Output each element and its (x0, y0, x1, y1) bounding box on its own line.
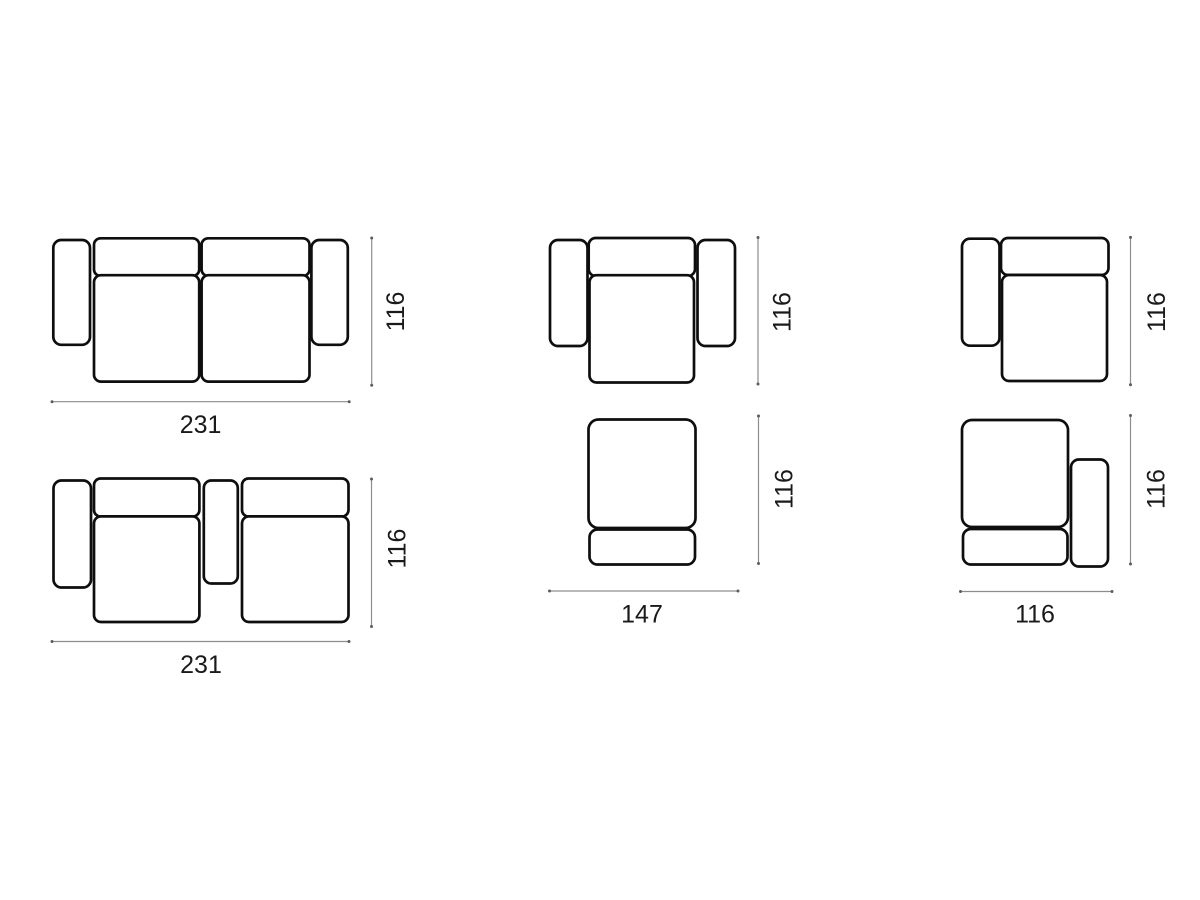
svg-text:116: 116 (382, 292, 410, 332)
svg-text:116: 116 (771, 469, 799, 509)
svg-text:116: 116 (384, 529, 412, 569)
svg-text:116: 116 (1143, 469, 1171, 509)
svg-text:231: 231 (180, 411, 222, 439)
svg-text:116: 116 (1143, 292, 1171, 332)
svg-text:231: 231 (180, 651, 222, 679)
svg-text:116: 116 (769, 292, 797, 332)
svg-text:147: 147 (621, 601, 663, 629)
svg-text:116: 116 (1015, 601, 1055, 629)
